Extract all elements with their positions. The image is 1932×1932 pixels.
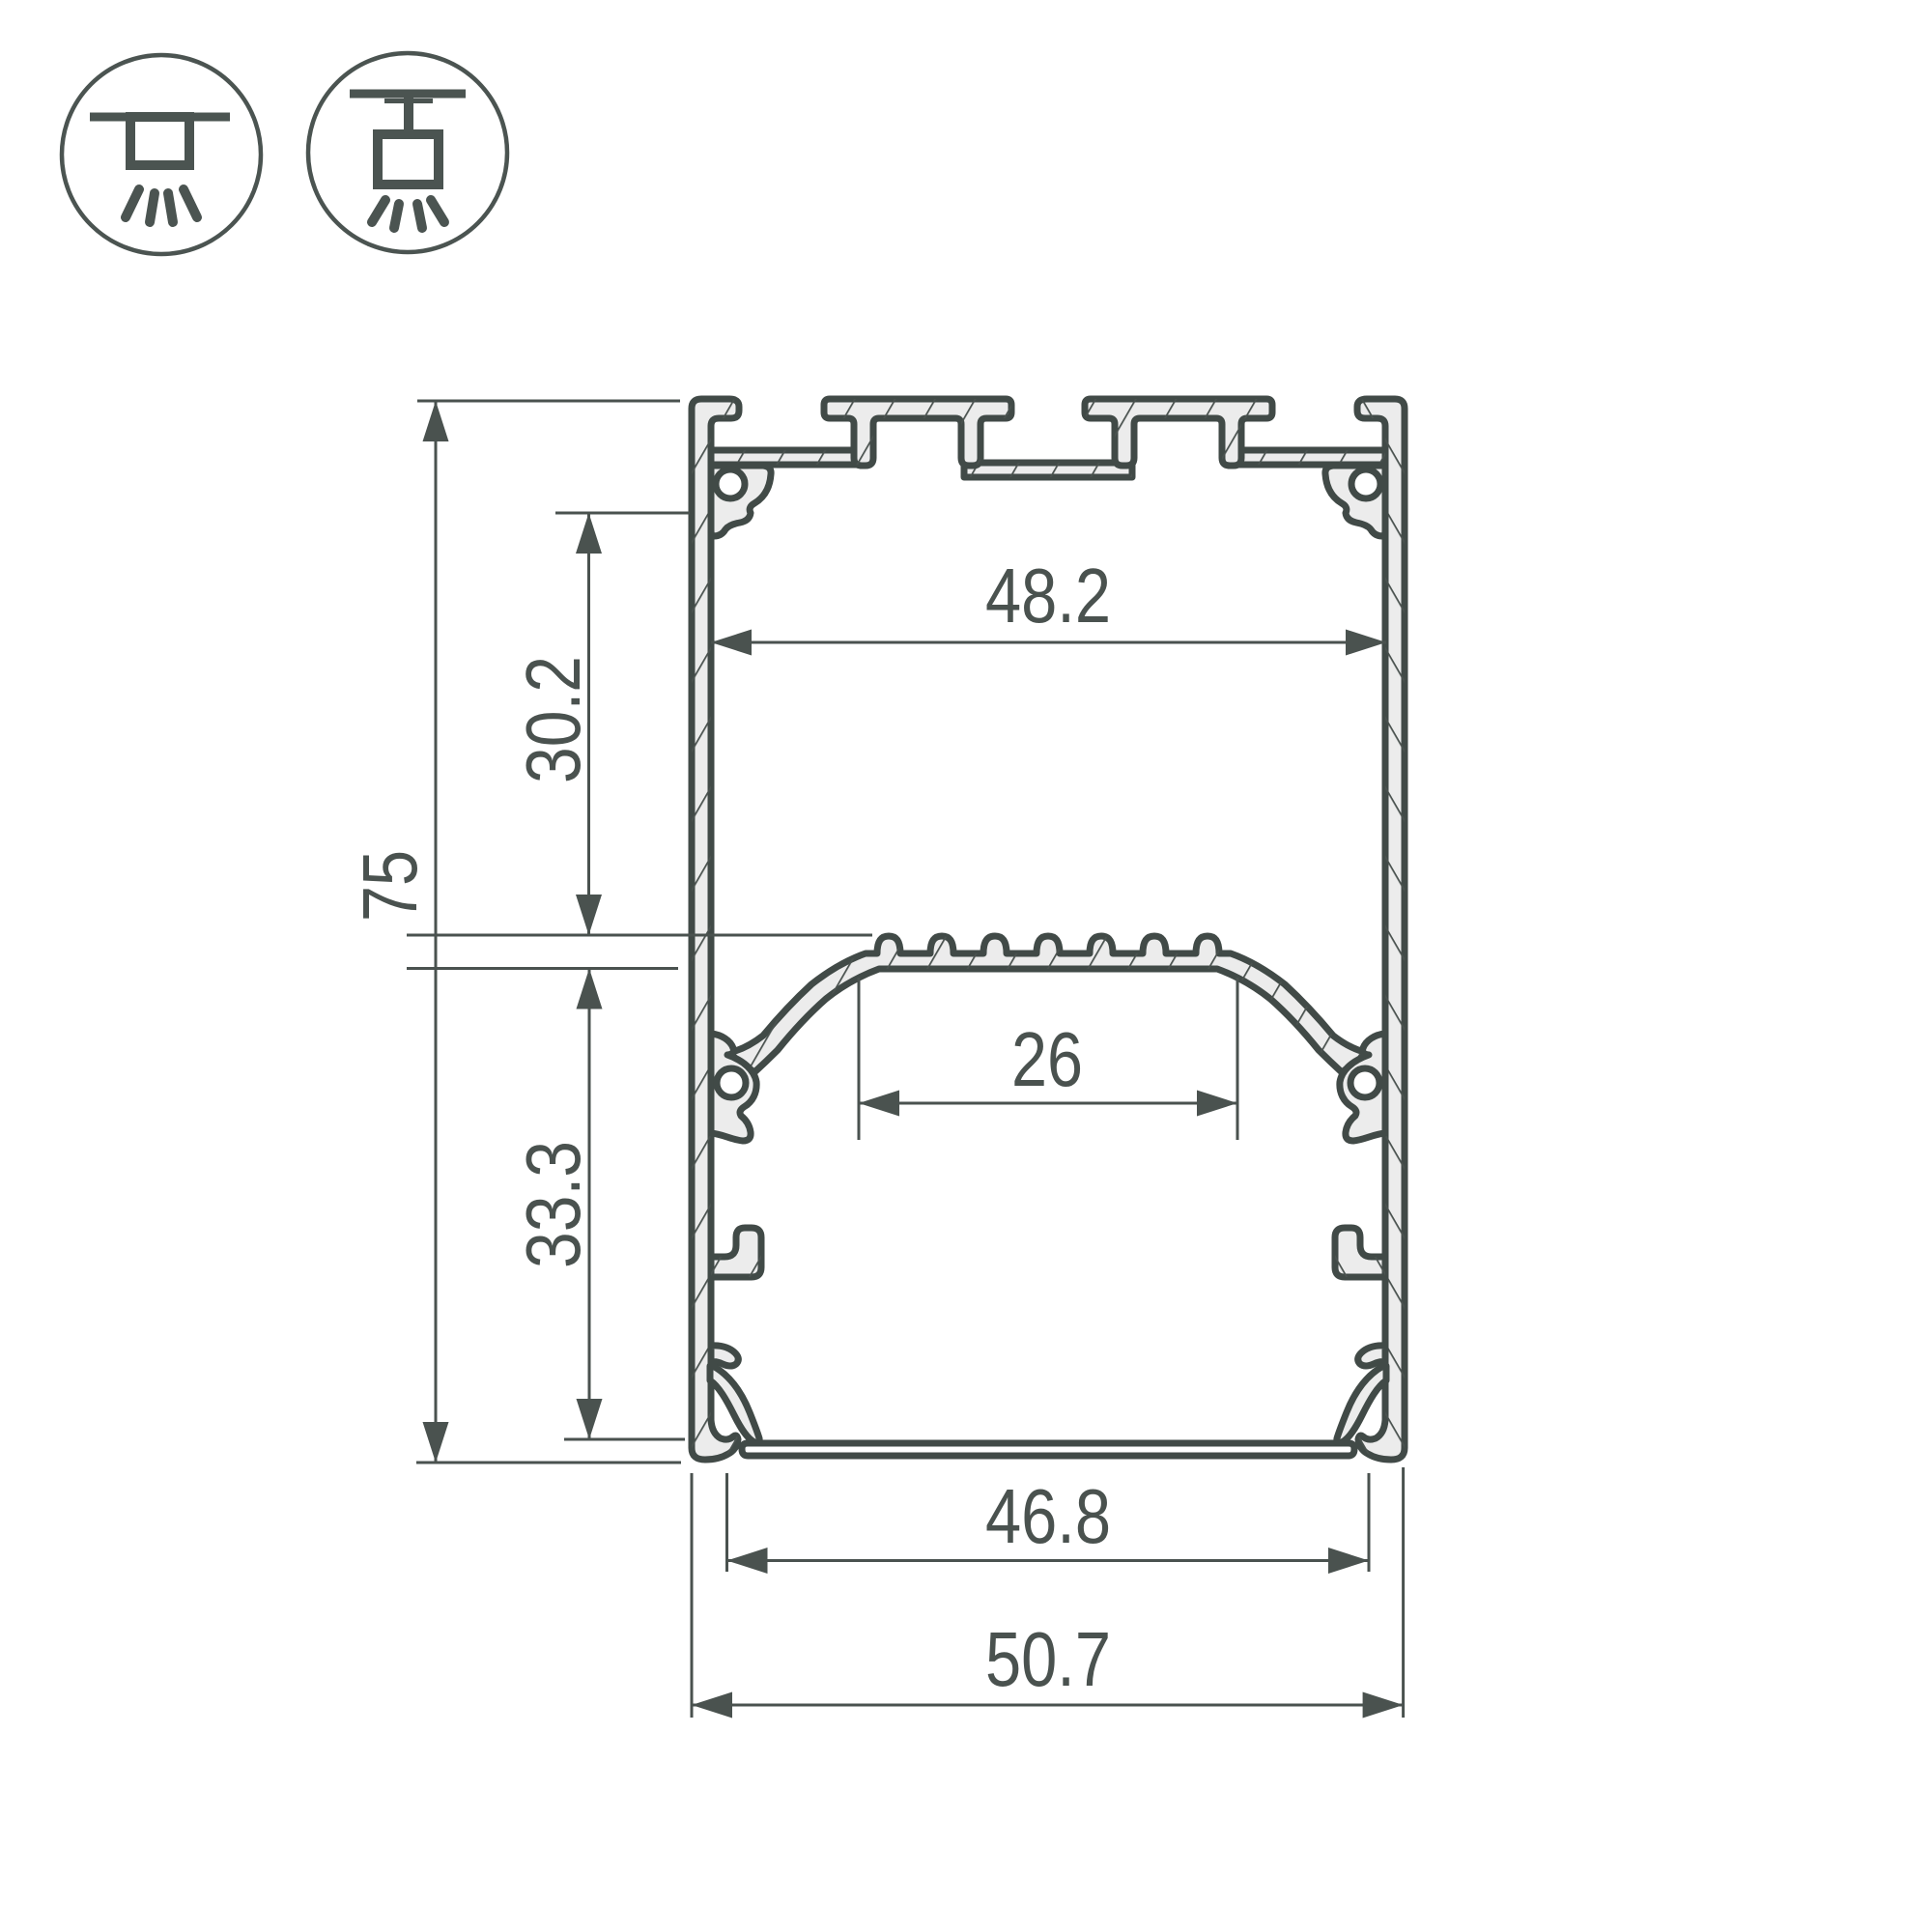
svg-text:26: 26 xyxy=(1011,1016,1083,1102)
svg-text:30.2: 30.2 xyxy=(510,656,596,783)
svg-text:75: 75 xyxy=(347,850,433,922)
svg-text:48.2: 48.2 xyxy=(985,553,1111,639)
svg-text:33.3: 33.3 xyxy=(510,1141,596,1268)
svg-text:50.7: 50.7 xyxy=(985,1616,1111,1702)
svg-text:46.8: 46.8 xyxy=(985,1473,1111,1559)
